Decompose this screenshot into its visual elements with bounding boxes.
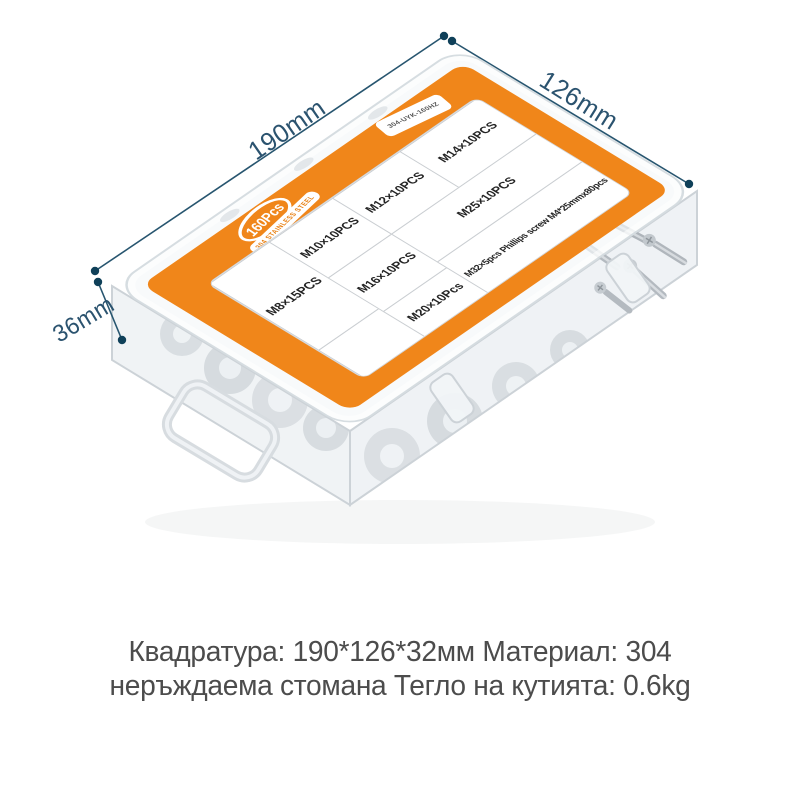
caption-line2: неръждаема стомана Тегло на кутията: 0.6… (61, 670, 740, 704)
product-image: 160Pcs 304 STAINLESS STEEL 304-UYK-160HZ… (0, 0, 800, 800)
caption-line1: Квадратура: 190*126*32мм Материал: 304 (61, 636, 740, 670)
box-shadow (145, 500, 655, 544)
product-caption: Квадратура: 190*126*32мм Материал: 304 н… (61, 636, 740, 703)
